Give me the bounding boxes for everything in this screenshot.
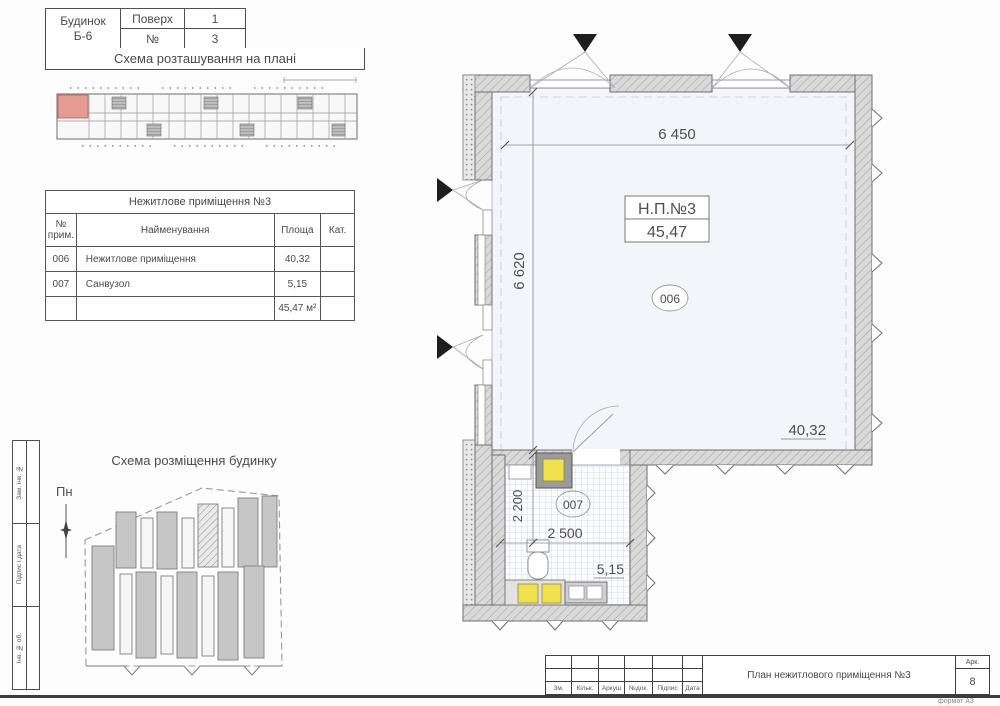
floor-plan: 6 450 6 620 2 200 2 500 Н.П.№3 45,47 006… (425, 28, 895, 643)
highlighted-unit (58, 95, 88, 118)
col-cat-header: Кат. (321, 214, 354, 246)
top-wall (463, 75, 872, 92)
door-triangle-icon (437, 178, 453, 202)
site-scheme-title: Схема розміщення будинку (88, 453, 300, 468)
col-area-header: Площа (275, 214, 322, 246)
svg-text:006: 006 (660, 292, 680, 306)
location-scheme-title: Схема розташування на плані (45, 48, 365, 70)
side-stamp: Зам. інв. № Підпис і дата Інв. № об. (12, 440, 40, 690)
values-col: 1 3 (185, 9, 245, 49)
fixture-yellow (543, 459, 564, 481)
drawing-title: План нежитлового приміщення №3 (703, 656, 956, 694)
room-006-bubble: 006 (652, 285, 688, 311)
col-name-header: Найменування (77, 214, 275, 246)
room-table-header: №прим. Найменування Площа Кат. (46, 214, 354, 247)
tb-label: Дата (683, 682, 702, 694)
row-num: 007 (46, 272, 77, 296)
stamp-label-2: Підпис і дата (16, 545, 23, 584)
area-007: 5,15 (597, 561, 624, 577)
dim-bath-v-label: 2 200 (510, 490, 525, 523)
bath-bottom-wall (463, 605, 647, 630)
unit-label: Н.П.№3 (638, 201, 696, 218)
dim-bath-h-label: 2 500 (547, 525, 582, 541)
area-006: 40,32 (788, 422, 826, 439)
revision-grid: Зм. Кільк. Аркуш №док. Підпис Дата (546, 656, 703, 694)
unit-area: 45,47 (647, 224, 687, 241)
number-value: 3 (185, 29, 245, 49)
dim-top-label: 6 450 (658, 126, 696, 143)
door-triangle-icon (437, 335, 453, 359)
building-info-table: Будинок Б-6 Поверх № 1 3 (45, 8, 246, 50)
sheet-number: 8 (956, 669, 989, 694)
bath-left-wall (492, 455, 505, 605)
room-table-title: Нежитлове приміщення №3 (46, 191, 354, 214)
tb-label: Підпис (653, 682, 683, 694)
stamp-label-3: Інв. № об. (16, 633, 23, 663)
site-plan: Пн (52, 478, 302, 696)
entrance-triangle-icon (573, 34, 597, 52)
entrance-triangle-icon (728, 34, 752, 52)
stamp-label-1: Зам. інв. № (16, 465, 23, 500)
row-area: 5,15 (275, 272, 322, 296)
row-num: 006 (46, 247, 77, 271)
total-area: 45,47 м² (275, 297, 322, 320)
tb-label: №док. (625, 682, 653, 694)
number-label: № (121, 29, 184, 49)
location-scheme-plan (52, 74, 367, 164)
unit-label-box: Н.П.№3 45,47 (625, 196, 709, 242)
table-total-row: 45,47 м² (46, 297, 354, 320)
row-name: Санвузол (77, 272, 275, 296)
table-row: 006 Нежитлове приміщення 40,32 (46, 247, 354, 272)
floor-label: Поверх (121, 9, 184, 29)
left-wall (463, 75, 492, 610)
site-cut-line (86, 666, 282, 675)
row-area: 40,32 (275, 247, 322, 271)
tb-label: Зм. (546, 682, 572, 694)
sheet-label: Арк. (956, 656, 989, 669)
building-label: Будинок (60, 14, 105, 29)
svg-text:007: 007 (563, 498, 583, 512)
format-note: формат А3 (938, 698, 974, 705)
fixture-yellow (542, 584, 561, 603)
strip-dim-bracket (284, 77, 356, 83)
row-cat (321, 247, 354, 271)
sheet-frame-bottom (0, 695, 1000, 698)
bath-right-wall (630, 465, 655, 610)
north-label: Пн (56, 484, 73, 499)
room-006-floor (492, 88, 855, 465)
toilet-bowl (528, 552, 548, 579)
fixture-yellow (518, 584, 538, 603)
col-num-header: №прим. (46, 214, 77, 246)
table-row: 007 Санвузол 5,15 (46, 272, 354, 297)
title-block: Зм. Кільк. Аркуш №док. Підпис Дата План … (545, 655, 990, 695)
sink (509, 465, 531, 479)
labels-col: Поверх № (121, 9, 185, 49)
tb-label: Аркуш (599, 682, 625, 694)
tb-label: Кільк. (572, 682, 599, 694)
row-name: Нежитлове приміщення (77, 247, 275, 271)
drawing-sheet: Будинок Б-6 Поверх № 1 3 Схема розташува… (0, 0, 1000, 706)
room-table: Нежитлове приміщення №3 №прим. Найменува… (45, 190, 355, 321)
dim-left-label: 6 620 (511, 252, 528, 290)
north-arrow-icon (60, 504, 72, 558)
right-wall (855, 75, 882, 465)
site-buildings (92, 496, 277, 660)
building-value: Б-6 (74, 29, 93, 44)
row-cat (321, 272, 354, 296)
floor-value: 1 (185, 9, 245, 29)
bottom-wall-main (630, 450, 872, 474)
building-cell: Будинок Б-6 (46, 9, 121, 49)
